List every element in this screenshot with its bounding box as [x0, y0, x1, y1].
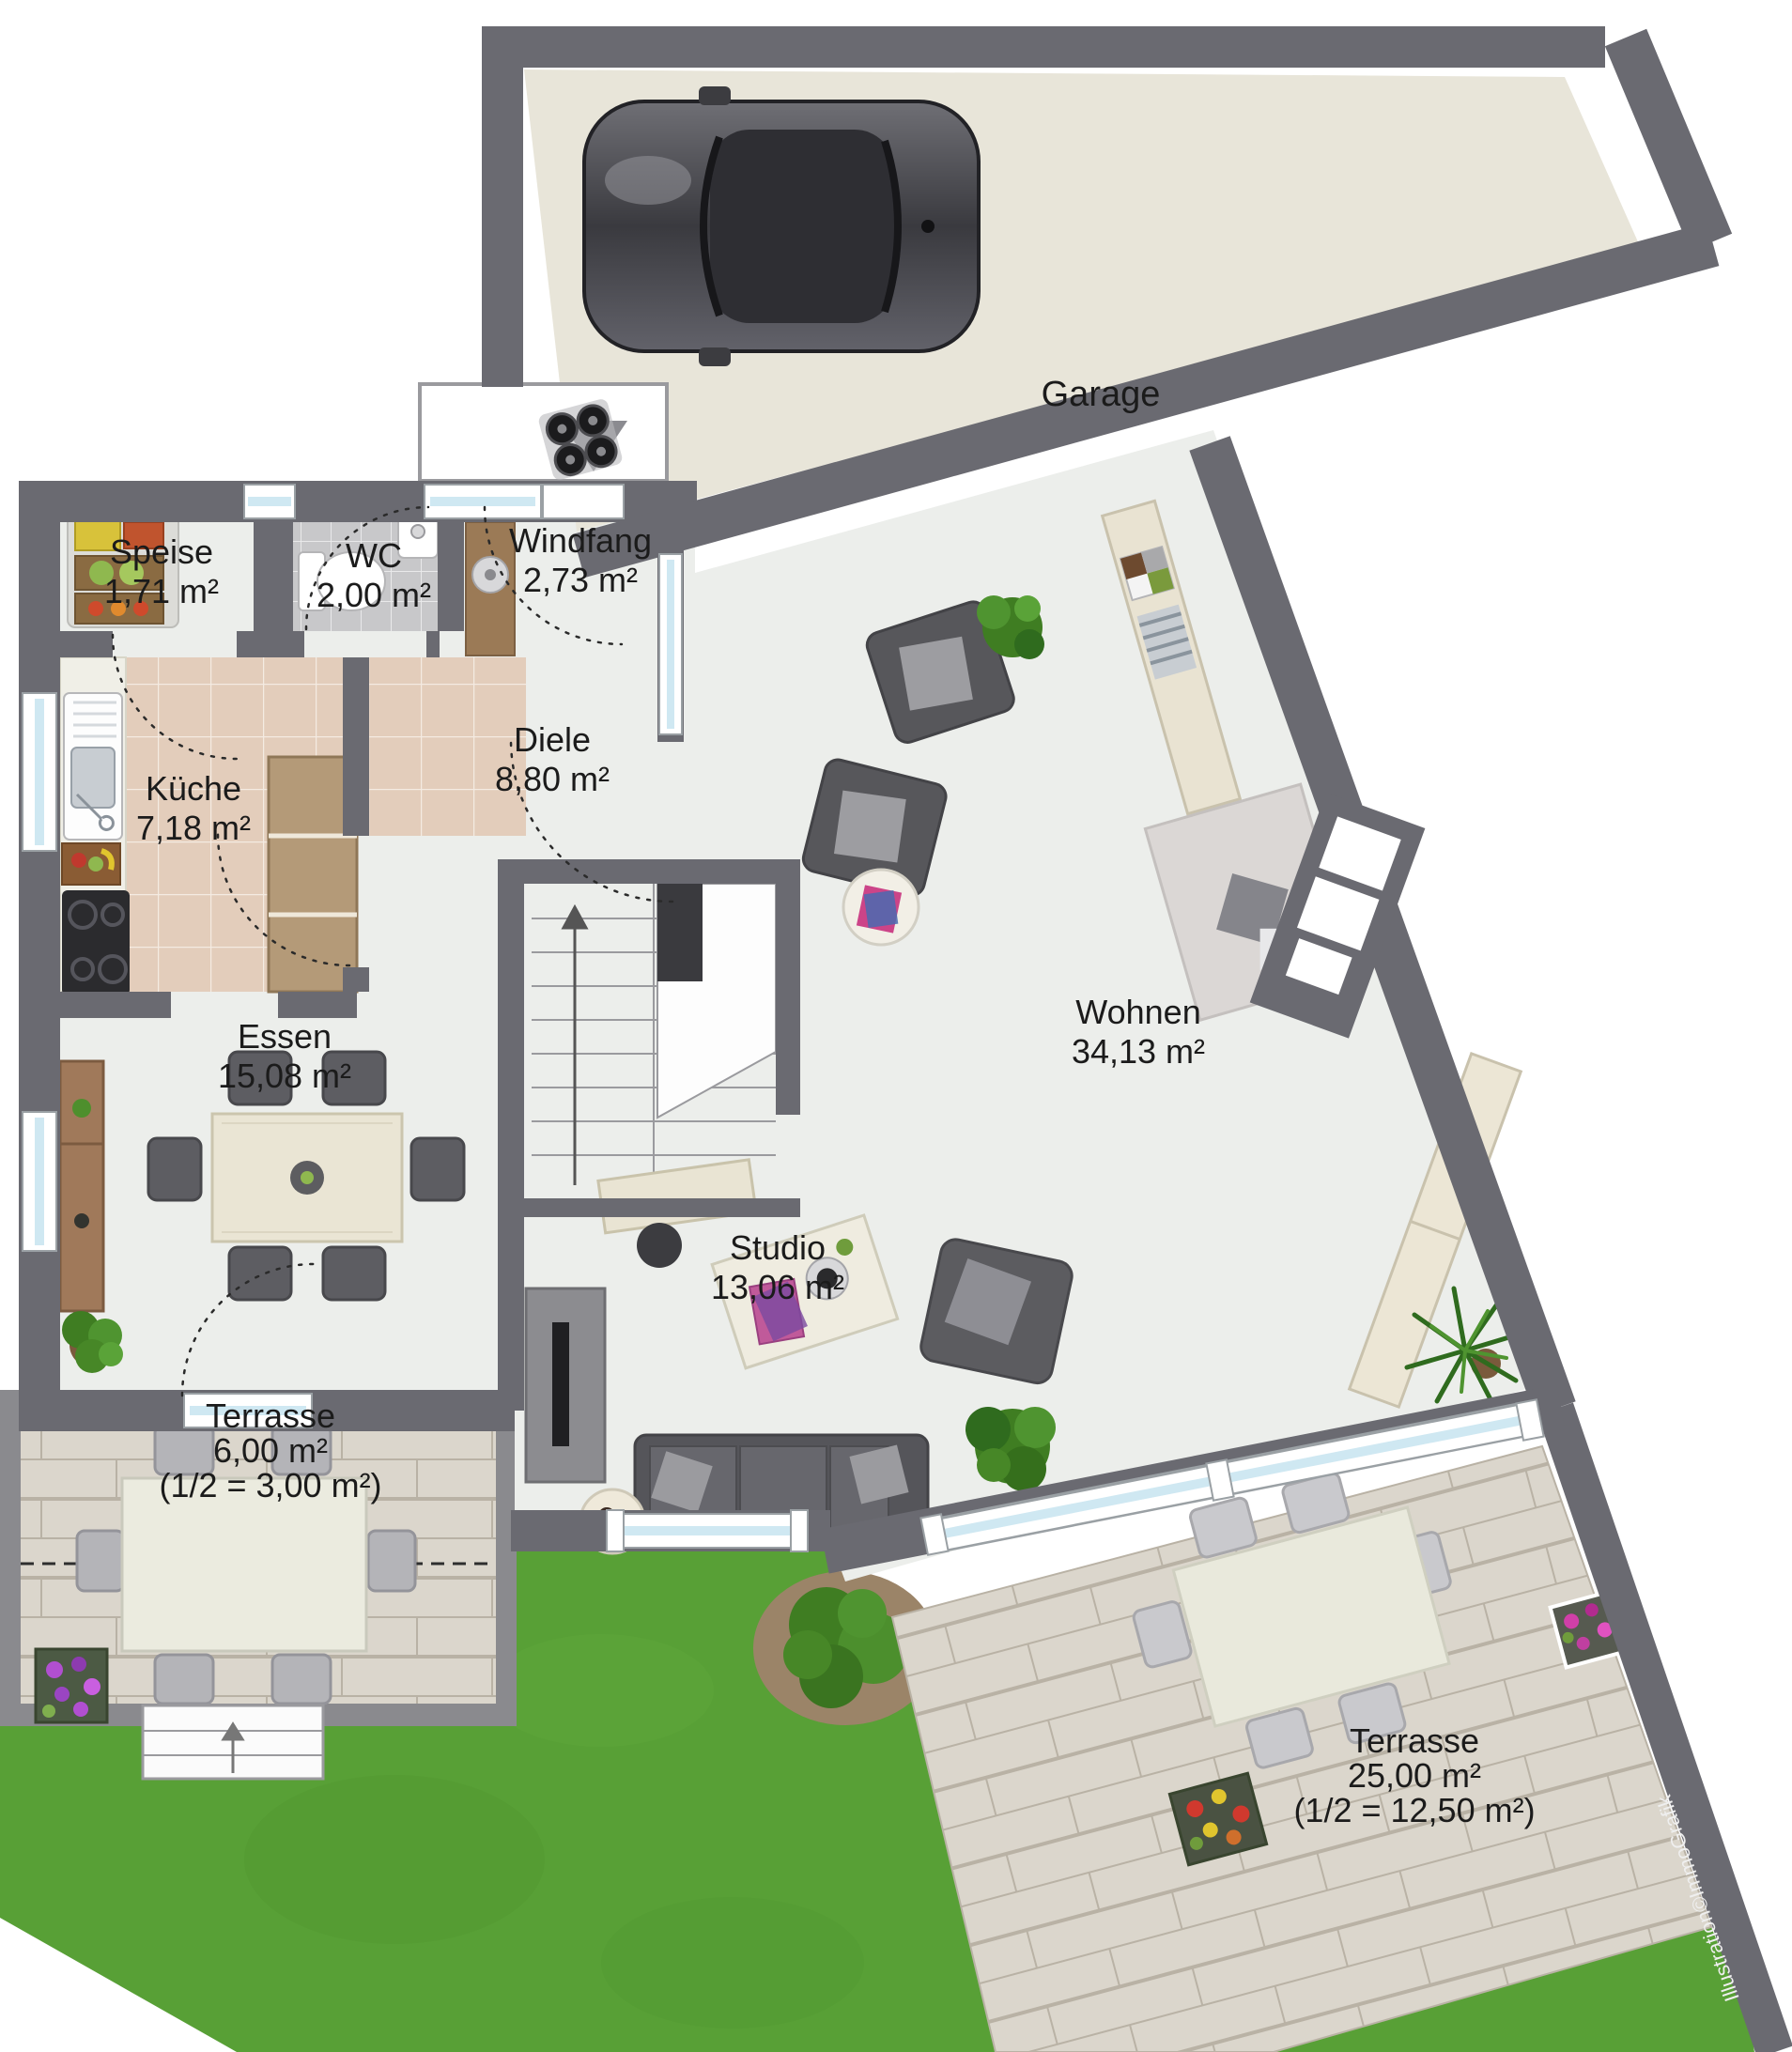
- room-label-wohnen: Wohnen 34,13 m²: [1072, 993, 1205, 1071]
- garden-steps: [143, 1705, 323, 1779]
- svg-text:8,80 m²: 8,80 m²: [495, 760, 610, 798]
- tv: [552, 1322, 569, 1446]
- svg-text:Wohnen: Wohnen: [1075, 993, 1200, 1031]
- svg-text:Küche: Küche: [146, 769, 241, 808]
- svg-text:(1/2 = 3,00 m²): (1/2 = 3,00 m²): [159, 1466, 381, 1504]
- room-label-garage: Garage: [1042, 375, 1161, 414]
- svg-text:7,18 m²: 7,18 m²: [136, 809, 251, 847]
- svg-text:2,00 m²: 2,00 m²: [317, 576, 431, 614]
- window-kitchen-west: [23, 693, 56, 851]
- window-studio-south: [607, 1510, 808, 1551]
- svg-text:34,13 m²: 34,13 m²: [1072, 1032, 1205, 1071]
- svg-text:Speise: Speise: [110, 532, 213, 571]
- kitchen-doorway-floor: [357, 657, 526, 836]
- svg-text:Essen: Essen: [238, 1017, 332, 1056]
- svg-text:Terrasse: Terrasse: [1350, 1721, 1479, 1760]
- car: [584, 86, 979, 366]
- studio-armchair: [919, 1237, 1074, 1386]
- svg-text:Terrasse: Terrasse: [206, 1396, 335, 1435]
- svg-text:13,06 m²: 13,06 m²: [711, 1268, 844, 1306]
- car-mirror: [699, 86, 731, 105]
- living-side-table: [843, 870, 919, 945]
- svg-text:WC: WC: [346, 536, 402, 575]
- svg-text:2,73 m²: 2,73 m²: [523, 561, 638, 599]
- svg-text:6,00 m²: 6,00 m²: [213, 1431, 328, 1470]
- svg-text:1,71 m²: 1,71 m²: [104, 572, 219, 610]
- kitchen-counter: [60, 657, 130, 995]
- floor-plan: Garage Speise 1,71 m² WC 2,00 m² Windfan…: [0, 0, 1792, 2052]
- svg-text:15,08 m²: 15,08 m²: [218, 1057, 351, 1095]
- flower-planter: [36, 1649, 107, 1722]
- room-label-speise: Speise 1,71 m²: [104, 532, 219, 610]
- svg-text:(1/2 = 12,50 m²): (1/2 = 12,50 m²): [1293, 1791, 1535, 1829]
- tv-board: [526, 1288, 605, 1482]
- svg-text:Windfang: Windfang: [509, 521, 652, 560]
- window-dining-west: [23, 1112, 56, 1251]
- floor-plan-canvas: Garage Speise 1,71 m² WC 2,00 m² Windfan…: [0, 0, 1792, 2052]
- window-top-small: [244, 485, 295, 518]
- svg-text:25,00 m²: 25,00 m²: [1348, 1756, 1481, 1795]
- room-label-windfang: Windfang 2,73 m²: [509, 521, 652, 599]
- pantry-shelf: [68, 515, 178, 627]
- svg-text:Studio: Studio: [730, 1228, 826, 1267]
- dining-sideboard: [60, 1061, 103, 1311]
- svg-text:Diele: Diele: [514, 720, 591, 759]
- desk-chair: [637, 1223, 682, 1268]
- room-label-kueche: Küche 7,18 m²: [136, 769, 251, 847]
- room-label-essen: Essen 15,08 m²: [218, 1017, 351, 1095]
- room-label-studio: Studio 13,06 m²: [711, 1228, 844, 1306]
- window-hall-east: [659, 554, 682, 734]
